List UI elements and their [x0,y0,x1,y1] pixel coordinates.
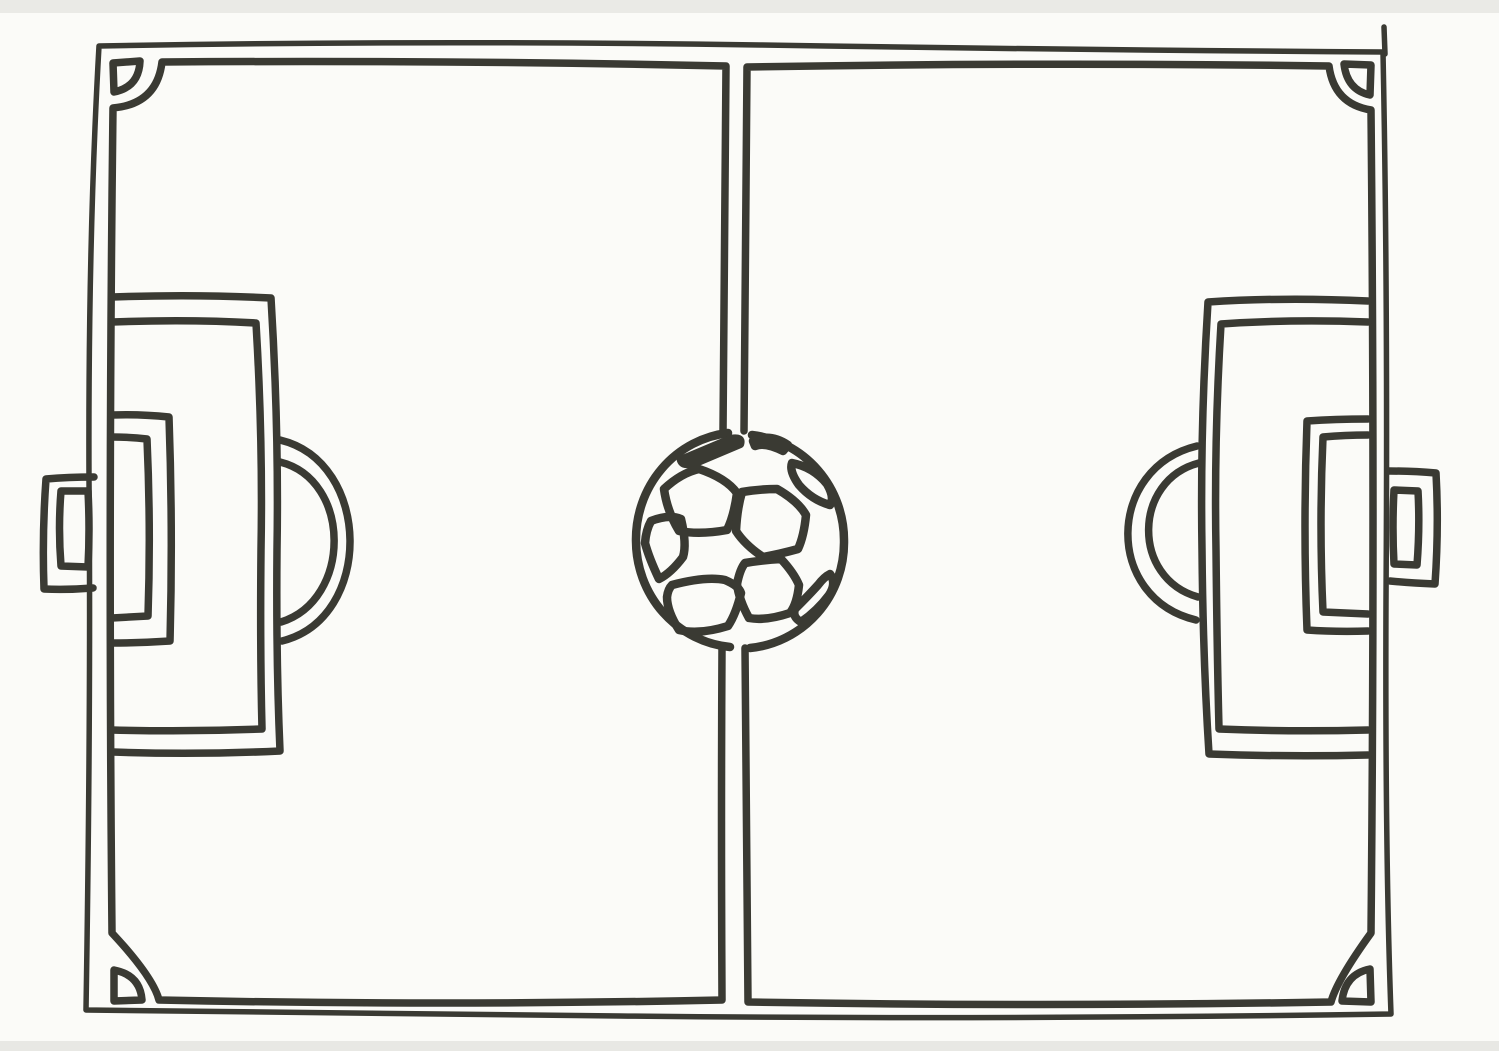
touchline-right-half [744,64,1373,1004]
goal-area-right-inner [1321,435,1368,614]
goal-area-right-outer [1305,419,1368,631]
goal-right [1389,471,1437,584]
soccer-field-drawing [0,0,1499,1051]
goal-left-inner [60,491,90,567]
ball-patch-center-hexagon [736,489,806,557]
goal-area-left-outer [112,415,171,643]
scanned-coloring-page [0,0,1499,1051]
outer-boundary-overshoot [1384,27,1385,54]
penalty-arc-left-inner [280,462,334,622]
corner-arc-top-right [1344,64,1371,95]
ball-patch-bottom-left [667,579,741,632]
penalty-area-left [112,296,280,754]
ball-patch-upper-left-pentagon [664,469,737,533]
ball-patch-top-right-sliver [753,438,788,451]
scan-artifact-bottom [0,1041,1499,1051]
corner-arc-bottom-left [114,970,142,1001]
corner-arc-top-left [113,61,140,92]
penalty-area-right [1202,299,1368,756]
soccer-ball-icon [636,433,844,648]
ball-patch-bottom-hexagon [737,559,799,619]
penalty-arc-right [1128,446,1199,620]
penalty-area-left-inner [112,321,262,731]
goal-right-inner [1393,490,1419,565]
scan-artifact-top [0,0,1499,13]
penalty-area-right-outer [1202,299,1368,756]
goal-left [43,477,94,589]
goal-area-left [112,415,171,643]
penalty-arc-right-inner [1149,463,1199,597]
goal-area-left-inner [112,437,149,618]
penalty-area-right-inner [1216,321,1368,731]
penalty-arc-left-outer [280,440,350,641]
goal-area-right [1305,419,1368,631]
ball-patch-left-edge [645,517,685,579]
penalty-arc-left [280,440,350,641]
